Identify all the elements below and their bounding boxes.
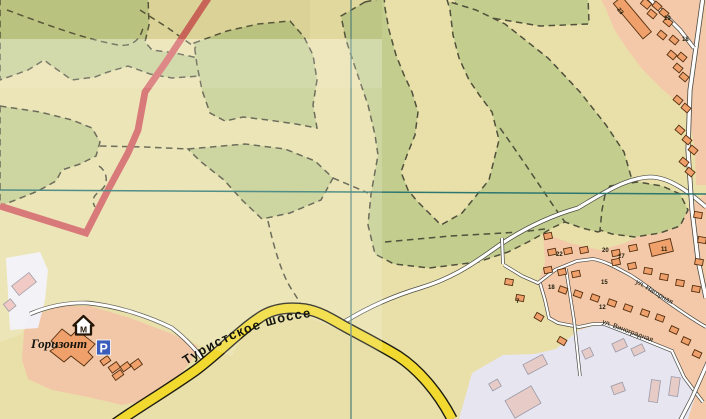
svg-text:18: 18 bbox=[548, 285, 555, 291]
svg-text:19: 19 bbox=[664, 16, 671, 22]
svg-text:Горизонт: Горизонт bbox=[30, 336, 87, 351]
svg-text:М: М bbox=[80, 325, 87, 335]
svg-text:18: 18 bbox=[682, 37, 689, 43]
svg-text:20: 20 bbox=[602, 248, 609, 254]
svg-text:11: 11 bbox=[661, 247, 668, 253]
svg-text:15: 15 bbox=[601, 280, 608, 286]
svg-text:22: 22 bbox=[556, 252, 563, 258]
svg-text:12: 12 bbox=[599, 305, 606, 311]
svg-text:P: P bbox=[100, 342, 108, 356]
svg-text:17: 17 bbox=[618, 254, 625, 260]
